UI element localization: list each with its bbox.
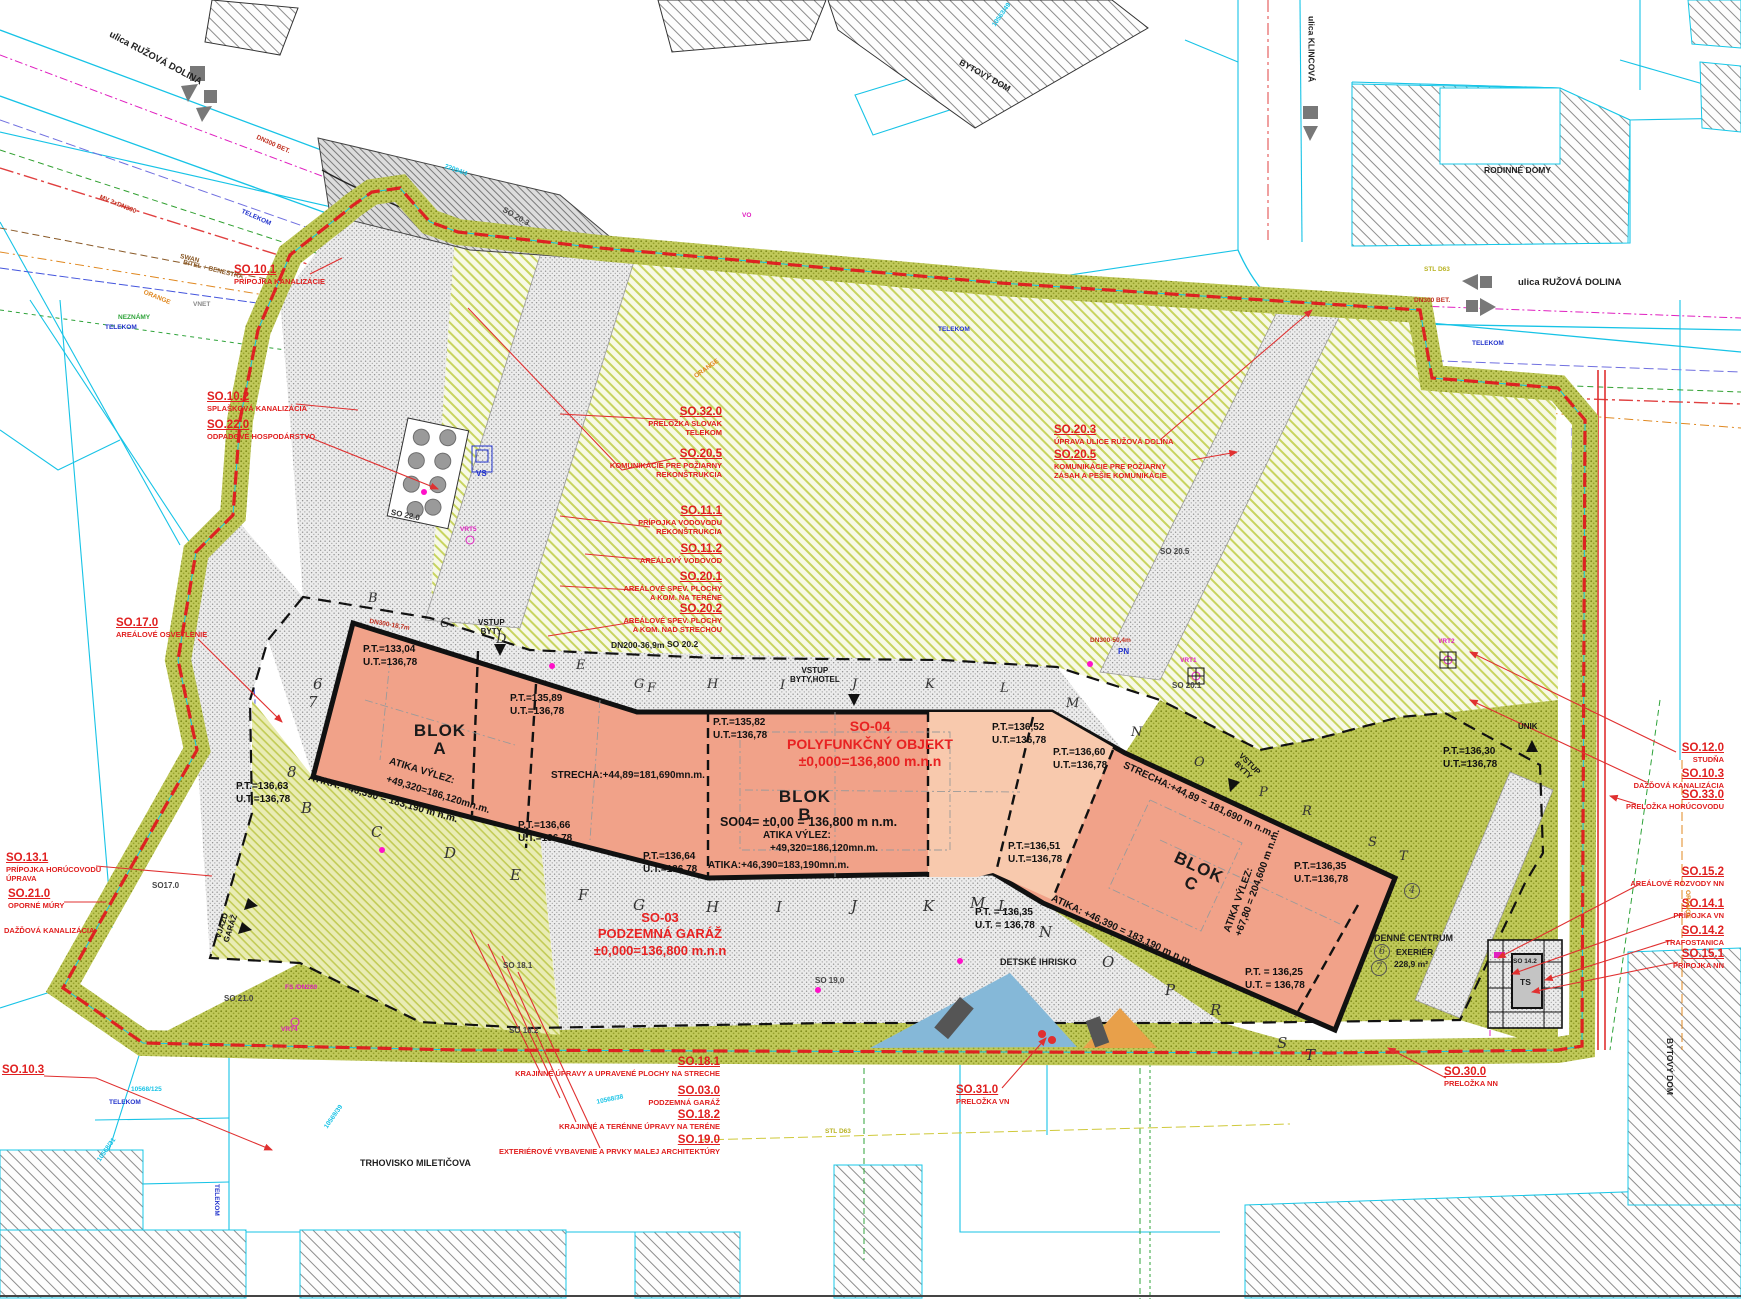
grid-bot-n: N bbox=[1039, 923, 1052, 941]
grid-top-l: L bbox=[1000, 681, 1009, 696]
parcel-white bbox=[1440, 88, 1560, 164]
plan-dn300-50: DN300-50,4m bbox=[1090, 637, 1131, 644]
callout-so-15-1: SO.15.1PRÍPOJKA NN bbox=[1673, 948, 1724, 970]
grid-bot-e: E bbox=[510, 866, 521, 884]
grid-bot-g: G bbox=[633, 896, 645, 914]
grid-left-6: 6 bbox=[313, 675, 323, 693]
area-trhovisko: TRHOVISKO MILETIČOVA bbox=[360, 1158, 471, 1168]
callout-so-15-2: SO.15.2AREÁLOVÉ ROZVODY NN bbox=[1630, 866, 1724, 888]
parcel-10568-125: 10568/125 bbox=[131, 1086, 162, 1093]
grid-top-g: G bbox=[634, 677, 644, 692]
plan-vrt1: VRT1 bbox=[1180, 657, 1197, 664]
plan-so-21-0: SO 21.0 bbox=[224, 995, 253, 1004]
grid-top-e: E bbox=[576, 658, 586, 673]
callout-so-22-0: SO.22.0ODPADOVÉ HOSPODÁRSTVO bbox=[207, 419, 315, 441]
grid-bot-j: J bbox=[851, 897, 857, 915]
area-denne-centrum-sub: EXERIÉR bbox=[1396, 948, 1433, 958]
grid-bot-k: K bbox=[923, 897, 934, 915]
callout-so-12-0: SO.12.0STUDŇA bbox=[1682, 742, 1724, 764]
area-bytovy-dom-right: BYTOVÝ DOM bbox=[1664, 1038, 1674, 1095]
plan-so-20-1: SO 20.1 bbox=[1172, 682, 1201, 691]
street-ruzova-dolina-e: ulica RUŽOVÁ DOLINA bbox=[1518, 278, 1621, 288]
plan-dn200: DN200-36,9m bbox=[611, 641, 664, 651]
callout-so-19-0: SO.19.0EXTERIÉROVÉ VYBAVENIE A PRVKY MAL… bbox=[499, 1134, 720, 1156]
grid-bot-f: F bbox=[578, 886, 588, 904]
grid-top-f: F bbox=[647, 681, 656, 696]
elevation-3: P.T.=135,82 U.T.=136,78 bbox=[713, 717, 767, 743]
entry-vstup-byty-hotel: VSTUP BYTY,HOTEL bbox=[790, 666, 840, 684]
plan-ts: TS bbox=[1520, 978, 1531, 988]
elevation-8: P.T.=136,60 U.T.=136,78 bbox=[1053, 747, 1107, 773]
callout-so-18-1: SO.18.1KRAJINNÉ ÚPRAVY A UPRAVENÉ PLOCHY… bbox=[515, 1056, 720, 1078]
plan-so-18-1: SO 18.1 bbox=[503, 962, 532, 971]
grid-top-p: P bbox=[1259, 785, 1268, 800]
area-detske-ihrisko: DETSKÉ IHRISKO bbox=[1000, 957, 1077, 967]
grid-left-7: 7 bbox=[308, 693, 318, 711]
plan-pn: PN bbox=[1118, 648, 1129, 657]
callout-so-10-2: SO.10.2SPLAŠKOVÁ KANALIZÁCIA bbox=[207, 391, 307, 413]
callout-so-10-3-left: SO.10.3 bbox=[2, 1064, 44, 1077]
callout-so-32-0: SO.32.0PRELOŽKA SLOVAK TELEKOM bbox=[648, 406, 722, 437]
blok-b-atika-vylez-value: +49,320=186,120mn.m. bbox=[770, 843, 878, 855]
utility-telekom-5: TELEKOM bbox=[109, 1099, 141, 1106]
callout-so-20-2: SO.20.2AREÁLOVÉ SPEV. PLOCHY A KOM. NAD … bbox=[624, 603, 723, 634]
blok-b-atika-vylez: ATIKA VÝLEZ: bbox=[763, 830, 831, 842]
elevation-5: P.T.=136,64 U.T.=136,78 bbox=[643, 851, 697, 877]
elevation-7: P.T.=136,52 U.T.=136,78 bbox=[992, 722, 1046, 748]
grid-bot-b: B bbox=[301, 799, 312, 817]
callout-so-33-0: SO.33.0PRELOŽKA HORÚCOVODU bbox=[1626, 789, 1724, 811]
area-rodinne-domy: RODINNÉ DOMY bbox=[1484, 166, 1551, 176]
blok-a-label: BLOK A bbox=[410, 722, 470, 758]
plan-vs: VS bbox=[476, 470, 487, 479]
entry-unik: ÚNIK bbox=[1518, 722, 1538, 731]
grid-top-o: O bbox=[1194, 755, 1205, 770]
utility-telekom-2: TELEKOM bbox=[938, 326, 970, 333]
grid-bot-s: S bbox=[1277, 1034, 1287, 1052]
plan-so-18-2: SO 18.2 bbox=[509, 1027, 538, 1036]
callout-so-21-0: SO.21.0OPORNÉ MÚRY bbox=[8, 888, 64, 910]
utility-neznamy: NEZNÁMY bbox=[118, 314, 150, 321]
utility-stl-2: STL D63 bbox=[825, 1128, 851, 1135]
plan-so-19-0: SO 19,0 bbox=[815, 977, 844, 986]
grid-top-j: J bbox=[852, 677, 857, 692]
plan-vrt5: VRT5 bbox=[460, 526, 477, 533]
grid-bot-c: C bbox=[371, 823, 382, 841]
plan-drawing: SO 22.0 bbox=[0, 0, 1741, 1299]
site-plan: SO 22.0 ulica RUŽOVÁ bbox=[0, 0, 1741, 1299]
utility-orange-3: ORANGE bbox=[1684, 890, 1691, 919]
utility-vnet: VNET bbox=[193, 301, 210, 308]
callout-so-11-1: SO.11.1PRÍPOJKA VODOVODU REKONŠTRUKCIA bbox=[638, 505, 722, 536]
grid-top-r: R bbox=[1302, 804, 1312, 819]
blok-a-strecha: STRECHA:+44,89=181,690mn.m. bbox=[551, 770, 705, 782]
grid-bot-o: O bbox=[1102, 953, 1114, 971]
plan-so-20-2: SO 20.2 bbox=[667, 640, 698, 650]
grid-circled-7: 7 bbox=[1371, 960, 1387, 976]
callout-so-11-2: SO.11.2AREÁLOVÝ VODOVOD bbox=[640, 543, 722, 565]
utility-telekom-4: TELEKOM bbox=[105, 324, 137, 331]
plan-so-14-2: SO 14.2 bbox=[1513, 958, 1537, 965]
grid-top-k: K bbox=[925, 677, 935, 692]
grid-bot-t: T bbox=[1305, 1046, 1315, 1064]
callout-so-13-1: SO.13.1PRÍPOJKA HORÚCOVODU ÚPRAVA bbox=[6, 852, 101, 883]
callout-so-03-0: SO.03.0PODZEMNÁ GARÁŽ bbox=[648, 1085, 720, 1107]
callout-dazdova-kanalizacia: DAŽĎOVÁ KANALIZÁCIA bbox=[4, 926, 94, 935]
so04-title: SO-04 POLYFUNKČNÝ OBJEKT ±0,000=136,800 … bbox=[755, 718, 985, 771]
grid-top-i: I bbox=[780, 678, 785, 693]
elevation-4: P.T.=136,66 U.T.=136,78 bbox=[518, 820, 572, 846]
callout-so-30-0: SO.30.0PRELOŽKA NN bbox=[1444, 1066, 1498, 1088]
callout-so-10-1: SO.10.1PRÍPOJKA KANALIZÁCIE bbox=[234, 264, 325, 286]
grid-bot-l: L bbox=[998, 897, 1008, 915]
blok-b-atika: ATIKA:+46,390=183,190mn.m. bbox=[708, 860, 849, 872]
area-denne-centrum: DENNÉ CENTRUM bbox=[1374, 933, 1453, 943]
grid-bot-d: D bbox=[444, 844, 456, 862]
area-denne-centrum-area: 228,9 m² bbox=[1394, 960, 1428, 970]
elevation-2: P.T.=135,89 U.T.=136,78 bbox=[510, 693, 564, 719]
callout-so-10-3-right: SO.10.3DAŽĎOVÁ KANALIZÁCIA bbox=[1634, 768, 1724, 790]
grid-bot-r: R bbox=[1210, 1001, 1221, 1019]
callout-so-20-1: SO.20.1AREÁLOVÉ SPEV. PLOCHY A KOM. NA T… bbox=[624, 571, 723, 602]
grid-top-c: C bbox=[440, 616, 450, 631]
grid-circled-6: 6 bbox=[1374, 944, 1390, 960]
utility-dn300bet-2: DN300 BET. bbox=[1414, 297, 1450, 304]
utility-telekom-6: TELEKOM bbox=[213, 1184, 220, 1216]
grid-top-m: M bbox=[1066, 696, 1079, 711]
callout-so-17-0: SO.17.0AREÁLOVÉ OSVETLENIE bbox=[116, 617, 207, 639]
grid-bot-h: H bbox=[706, 898, 719, 916]
callout-so-14-1: SO.14.1PRÍPOJKA VN bbox=[1673, 898, 1724, 920]
utility-fs: FS /DN200 bbox=[285, 984, 317, 991]
plan-so-20-5: SO 20.5 bbox=[1160, 548, 1189, 557]
plan-so-17-0: SO17.0 bbox=[152, 882, 179, 891]
so03-title: SO-03 PODZEMNÁ GARÁŽ ±0,000=136,800 m.n.… bbox=[555, 910, 765, 959]
utility-stl-1: STL D63 bbox=[1424, 266, 1450, 273]
grid-bot-i: I bbox=[776, 898, 782, 916]
elevation-12: P.T. = 136,25 U.T. = 136,78 bbox=[1245, 967, 1305, 993]
grid-bot-p: P bbox=[1165, 981, 1175, 999]
callout-so-20-3: SO.20.3ÚPRAVA ULICE RUŽOVÁ DOLINA bbox=[1054, 424, 1173, 446]
grid-bot-m: M bbox=[970, 894, 985, 912]
elevation-13: P.T.=136,30 U.T.=136,78 bbox=[1443, 746, 1497, 772]
blok-b-level: SO04= ±0,00 = 136,800 m n.m. bbox=[720, 815, 897, 830]
callout-so-18-2: SO.18.2KRAJINNÉ A TERÉNNE ÚPRAVY NA TERÉ… bbox=[559, 1109, 720, 1131]
grid-top-b: B bbox=[368, 591, 378, 606]
callout-so-20-5-b: SO.20.5KOMUNIKÁCIE PRE POŽIARNY ZÁSAH A … bbox=[1054, 449, 1167, 480]
elevation-9: P.T.=136,51 U.T.=136,78 bbox=[1008, 841, 1062, 867]
grid-top-s: S bbox=[1368, 835, 1377, 850]
grid-circled-4: 4 bbox=[1404, 883, 1420, 899]
grid-top-h: H bbox=[707, 677, 718, 692]
callout-so-14-2: SO.14.2TRAFOSTANICA bbox=[1665, 925, 1724, 947]
utility-telekom-3: TELEKOM bbox=[1472, 340, 1504, 347]
utility-vo: VO bbox=[742, 212, 751, 219]
grid-top-n: N bbox=[1131, 725, 1142, 740]
elevation-6: P.T.=136,63 U.T.=136,78 bbox=[236, 781, 290, 807]
street-klincova: ulica KLINCOVÁ bbox=[1306, 16, 1315, 82]
plan-vrt4: VRT4 bbox=[281, 1026, 298, 1033]
elevation-1: P.T.=133,04 U.T.=136,78 bbox=[363, 644, 417, 670]
plan-vrt2: VRT2 bbox=[1438, 638, 1455, 645]
entry-vstup-byty-1: VSTUP BYTY bbox=[478, 618, 505, 636]
callout-so-20-5: SO.20.5KOMUNIKÁCIE PRE POŽIARNY REKONŠTR… bbox=[610, 448, 722, 479]
grid-top-t: T bbox=[1399, 849, 1408, 864]
callout-so-31-0: SO.31.0PRELOŽKA VN bbox=[956, 1084, 1009, 1106]
grid-left-8: 8 bbox=[287, 763, 297, 781]
elevation-10: P.T.=136,35 U.T.=136,78 bbox=[1294, 861, 1348, 887]
